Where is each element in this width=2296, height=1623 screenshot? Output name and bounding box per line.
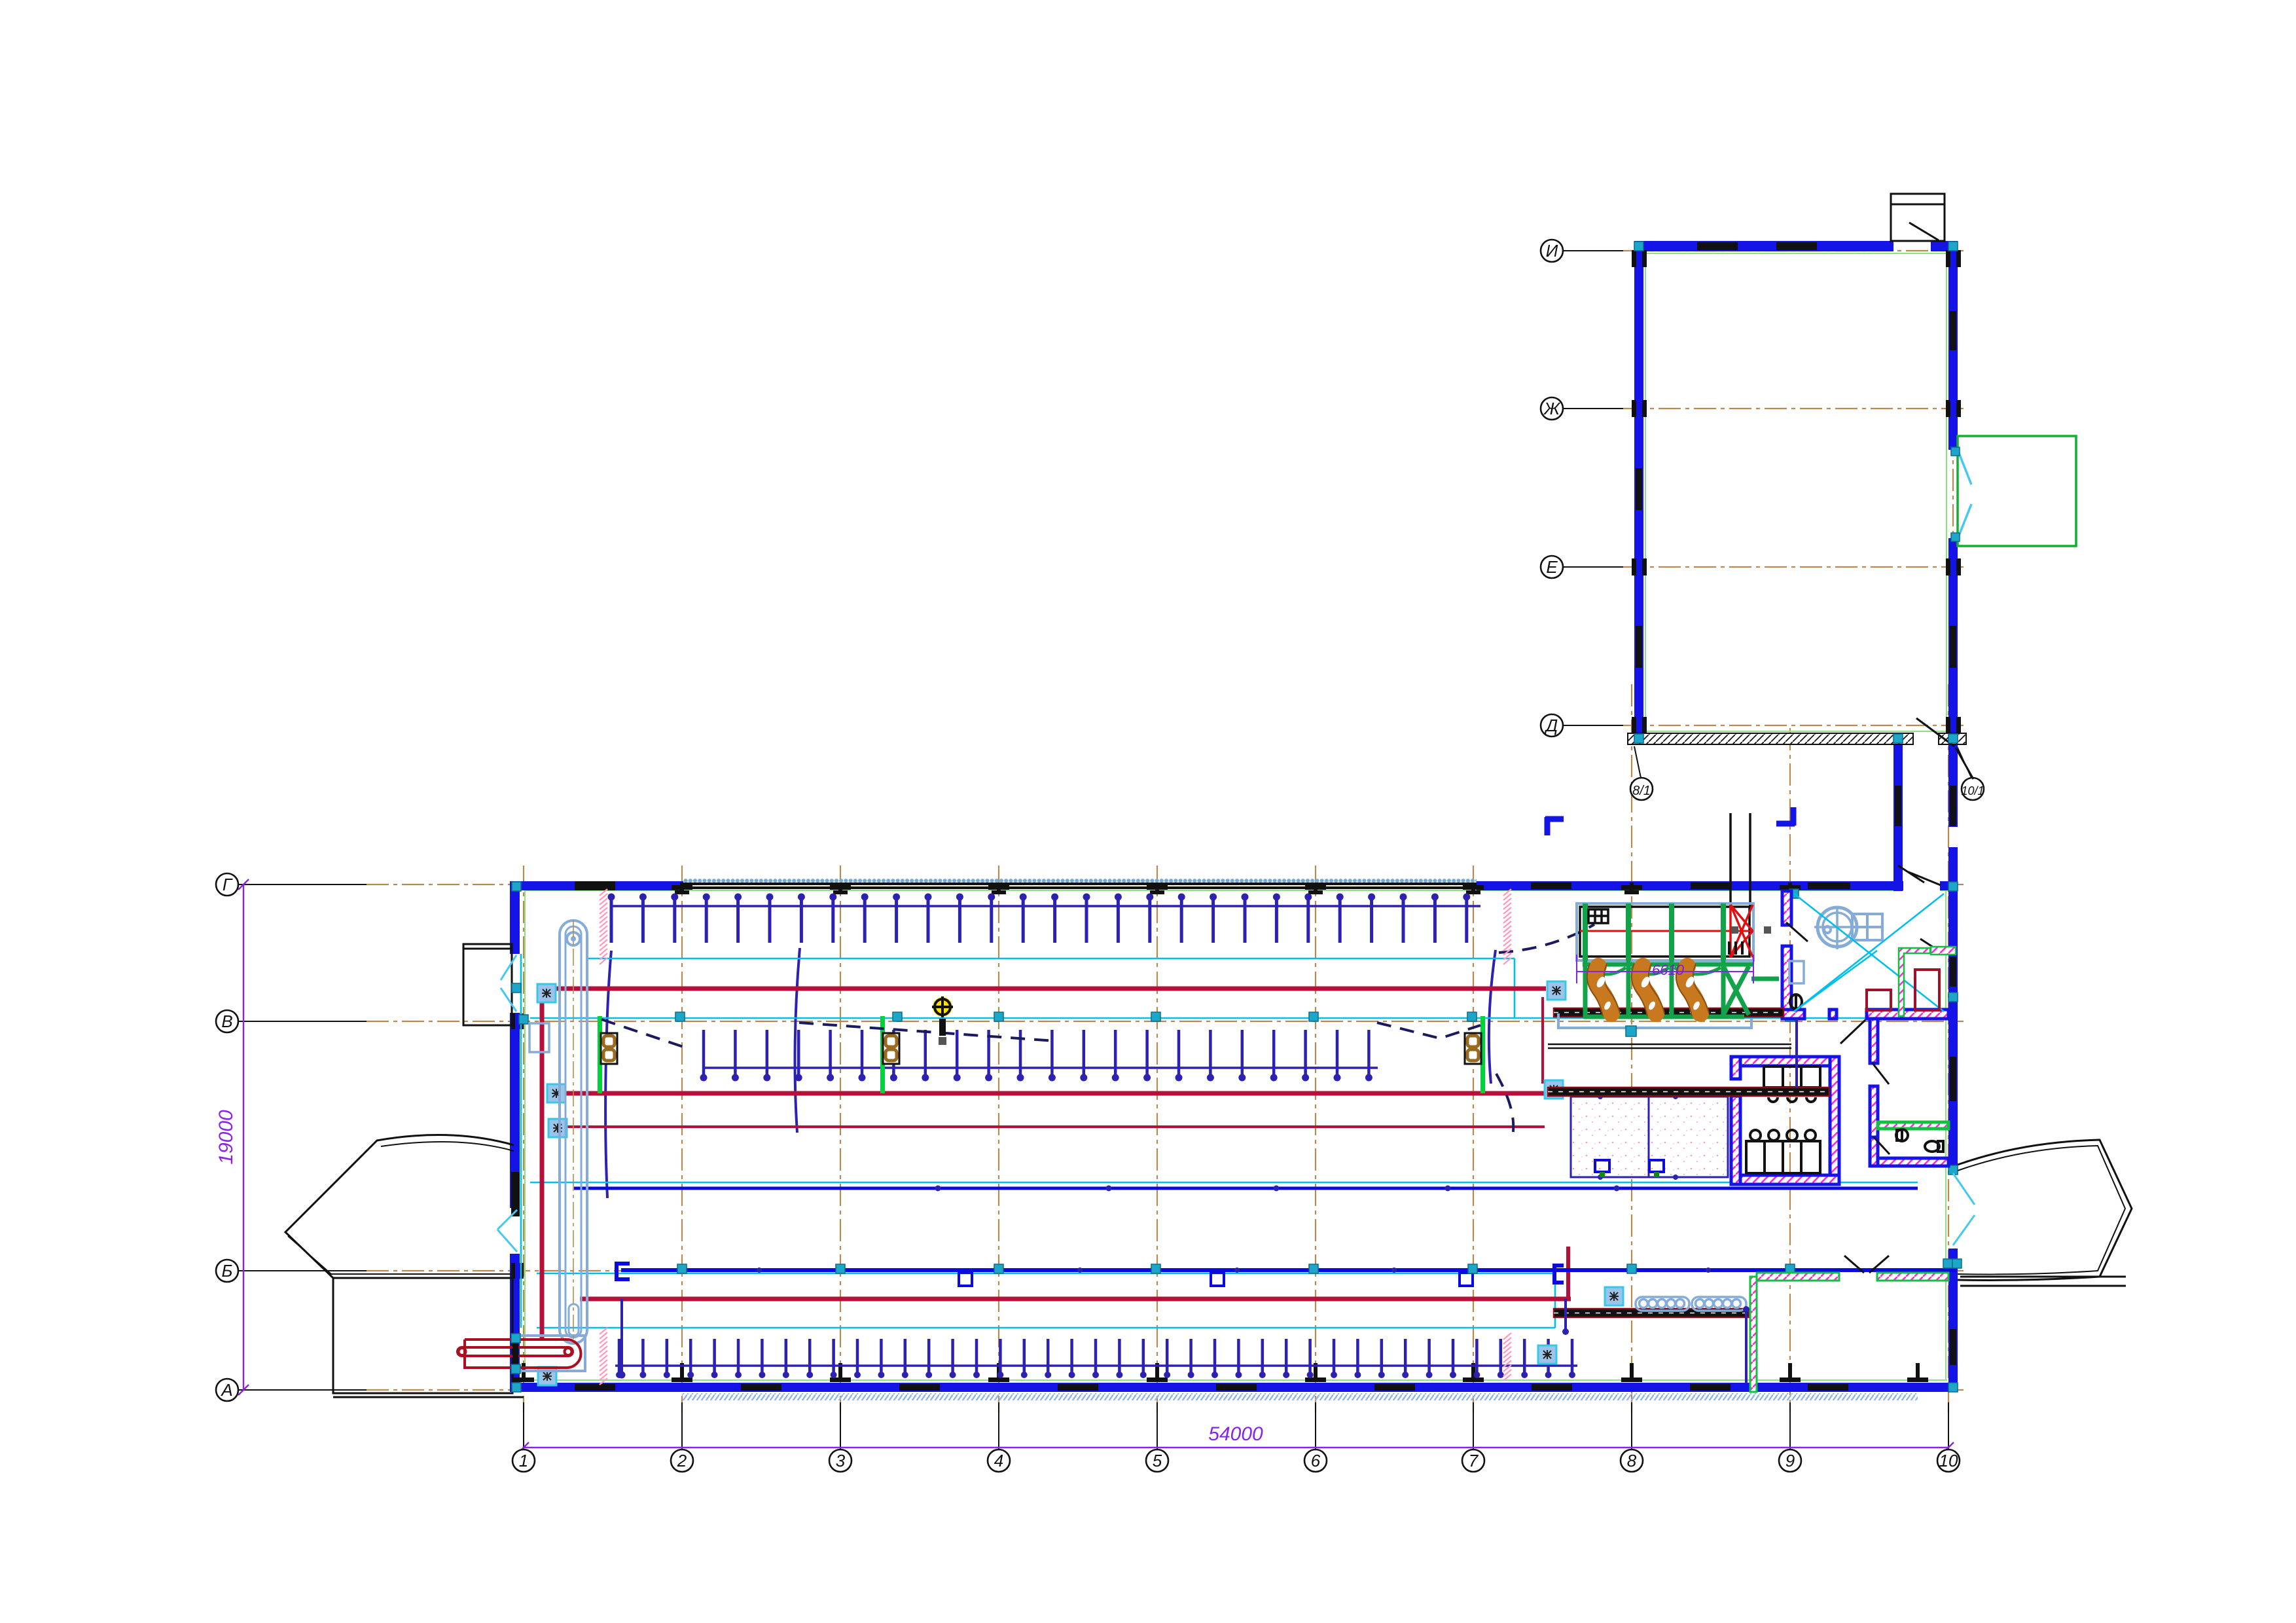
svg-text:8/1: 8/1 bbox=[1632, 784, 1651, 798]
svg-text:1: 1 bbox=[519, 1451, 528, 1470]
svg-text:2: 2 bbox=[677, 1451, 687, 1470]
svg-text:А: А bbox=[220, 1380, 232, 1400]
svg-text:Д: Д bbox=[1544, 716, 1558, 735]
svg-text:Ж: Ж bbox=[1543, 399, 1561, 418]
svg-text:Б: Б bbox=[222, 1261, 233, 1281]
svg-text:5: 5 bbox=[1153, 1451, 1162, 1470]
svg-text:19000: 19000 bbox=[215, 1110, 237, 1165]
svg-text:И: И bbox=[1546, 241, 1558, 261]
svg-text:9: 9 bbox=[1785, 1451, 1795, 1470]
svg-text:В: В bbox=[221, 1012, 232, 1031]
svg-text:6610: 6610 bbox=[1652, 962, 1685, 978]
svg-text:4: 4 bbox=[994, 1451, 1003, 1470]
svg-text:7: 7 bbox=[1469, 1451, 1479, 1470]
svg-text:10: 10 bbox=[1939, 1451, 1958, 1470]
svg-text:8: 8 bbox=[1627, 1451, 1637, 1470]
svg-text:54000: 54000 bbox=[1208, 1423, 1263, 1445]
svg-text:6: 6 bbox=[1311, 1451, 1321, 1470]
svg-text:Г: Г bbox=[223, 875, 233, 894]
svg-text:3: 3 bbox=[836, 1451, 846, 1470]
svg-text:E: E bbox=[1546, 557, 1558, 577]
svg-text:10/1: 10/1 bbox=[1961, 784, 1984, 797]
